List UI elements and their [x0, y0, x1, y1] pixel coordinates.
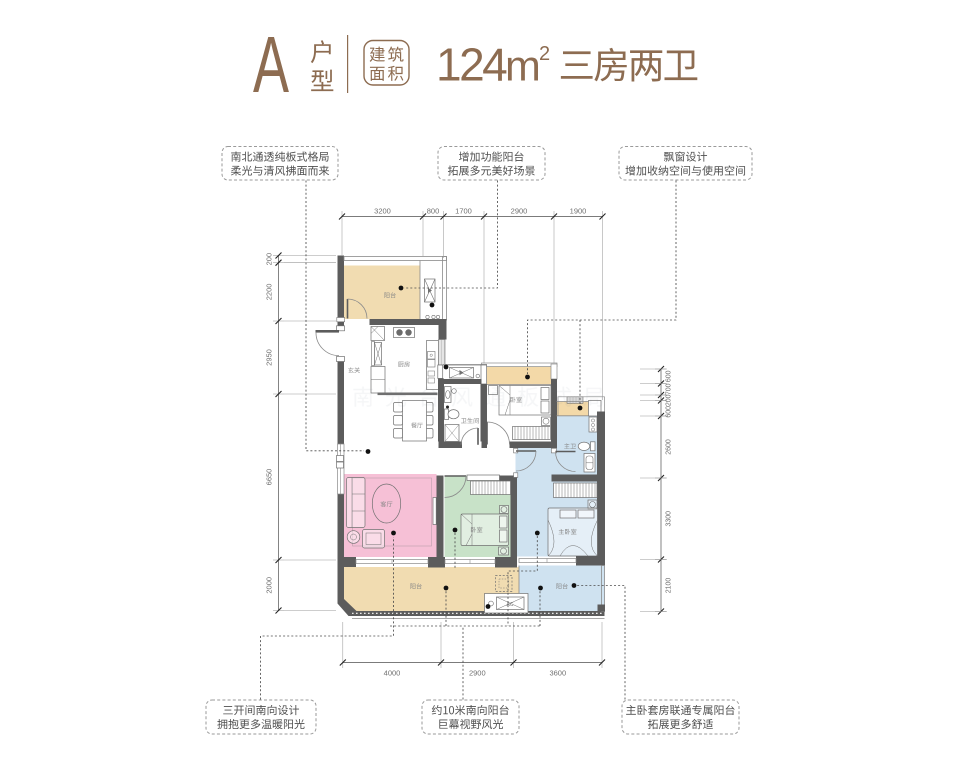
svg-text:800: 800 — [427, 207, 440, 216]
svg-text:3200: 3200 — [374, 207, 391, 216]
svg-text:2600: 2600 — [666, 439, 673, 455]
svg-text:1700: 1700 — [455, 207, 472, 216]
svg-text:2: 2 — [539, 43, 550, 65]
svg-text:2000: 2000 — [265, 577, 274, 594]
svg-text:A: A — [253, 20, 289, 109]
svg-text:2900: 2900 — [511, 207, 528, 216]
svg-text:600: 600 — [666, 370, 673, 382]
svg-text:2950: 2950 — [265, 349, 274, 366]
svg-text:200: 200 — [666, 394, 673, 406]
svg-text:6650: 6650 — [265, 469, 274, 486]
svg-text:600: 600 — [666, 406, 673, 418]
svg-text:1900: 1900 — [570, 207, 587, 216]
svg-text:2200: 2200 — [265, 284, 274, 301]
svg-text:2900: 2900 — [469, 669, 486, 678]
svg-text:700: 700 — [666, 383, 673, 395]
svg-text:200: 200 — [265, 253, 274, 266]
svg-text:3300: 3300 — [666, 511, 673, 527]
svg-text:124: 124 — [436, 39, 507, 91]
svg-text:4000: 4000 — [384, 669, 401, 678]
svg-text:2100: 2100 — [666, 578, 673, 594]
svg-text:m: m — [505, 43, 541, 91]
svg-text:3600: 3600 — [549, 669, 566, 678]
